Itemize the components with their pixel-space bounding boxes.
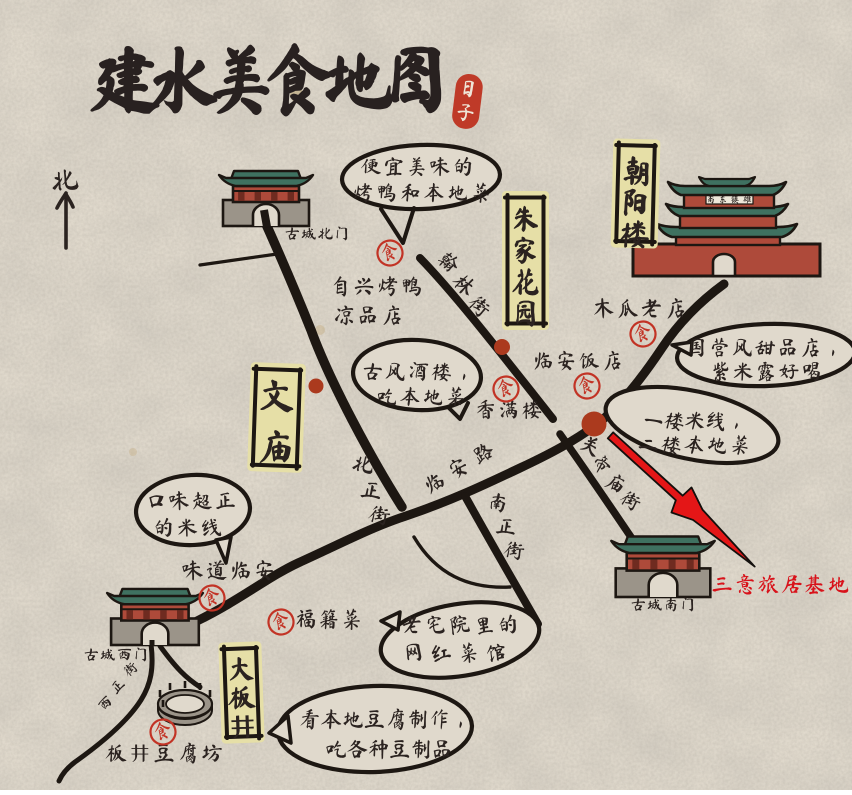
svg-text:红: 红: [429, 641, 453, 665]
svg-text:地: 地: [422, 385, 445, 408]
svg-text:，: ，: [453, 360, 476, 383]
svg-text:店: 店: [800, 337, 821, 358]
svg-text:喝: 喝: [801, 361, 822, 382]
svg-text:本: 本: [423, 182, 444, 203]
svg-text:安: 安: [253, 558, 276, 581]
svg-text:正: 正: [214, 489, 236, 511]
svg-text:食: 食: [494, 377, 517, 400]
svg-text:意: 意: [734, 573, 756, 595]
svg-text:味: 味: [168, 489, 190, 511]
svg-text:家: 家: [511, 236, 540, 265]
svg-text:道: 道: [205, 558, 228, 581]
svg-text:食: 食: [269, 610, 292, 633]
svg-text:菜: 菜: [445, 385, 468, 408]
svg-text:门: 门: [680, 596, 696, 612]
svg-text:楼: 楼: [659, 432, 684, 457]
svg-text:品: 品: [357, 304, 379, 326]
svg-text:古: 古: [83, 646, 99, 662]
svg-text:鸭: 鸭: [401, 275, 423, 297]
svg-text:子: 子: [454, 102, 476, 124]
svg-text:阳: 阳: [619, 186, 651, 218]
svg-text:园: 园: [511, 299, 540, 328]
svg-text:食: 食: [631, 322, 654, 345]
svg-text:二: 二: [636, 432, 661, 457]
svg-text:自: 自: [329, 275, 351, 297]
svg-text:美: 美: [406, 156, 427, 177]
svg-text:地: 地: [447, 182, 468, 203]
svg-text:朱: 朱: [511, 204, 540, 233]
svg-text:庙: 庙: [256, 427, 294, 465]
svg-text:北: 北: [49, 164, 81, 196]
svg-text:居: 居: [781, 573, 803, 595]
svg-text:城: 城: [100, 646, 116, 662]
svg-text:各: 各: [346, 738, 368, 760]
svg-text:超: 超: [191, 489, 213, 511]
svg-text:日: 日: [457, 78, 479, 100]
svg-text:便: 便: [360, 156, 381, 177]
svg-text:和: 和: [400, 182, 421, 203]
svg-text:地: 地: [341, 708, 364, 731]
svg-text:街: 街: [367, 502, 393, 527]
svg-text:安: 安: [555, 349, 577, 371]
svg-text:宜: 宜: [383, 156, 404, 177]
svg-text:坊: 坊: [201, 742, 223, 764]
svg-text:本: 本: [320, 708, 343, 731]
svg-text:味: 味: [181, 558, 204, 581]
svg-text:城: 城: [301, 225, 317, 241]
svg-text:南: 南: [663, 596, 679, 612]
svg-text:腐: 腐: [385, 708, 408, 731]
svg-text:制: 制: [410, 738, 432, 760]
svg-text:古: 古: [361, 360, 384, 383]
svg-text:木: 木: [592, 296, 615, 319]
svg-text:作: 作: [428, 708, 451, 731]
svg-text:老: 老: [640, 296, 663, 319]
svg-text:南: 南: [706, 196, 715, 205]
svg-text:风: 风: [732, 337, 753, 358]
svg-text:兴: 兴: [353, 275, 375, 297]
svg-text:饭: 饭: [578, 350, 600, 372]
svg-text:里: 里: [472, 613, 496, 637]
svg-text:烤: 烤: [377, 275, 399, 297]
svg-text:店: 店: [381, 304, 403, 326]
svg-text:凉: 凉: [333, 304, 355, 326]
svg-text:米: 米: [683, 408, 708, 433]
svg-text:楼: 楼: [430, 360, 453, 383]
svg-text:，: ，: [823, 337, 844, 358]
svg-text:品: 品: [431, 738, 453, 760]
svg-text:的: 的: [496, 613, 520, 637]
svg-text:瓜: 瓜: [616, 296, 639, 319]
svg-text:井: 井: [228, 713, 258, 742]
svg-text:大: 大: [226, 654, 255, 683]
svg-text:酒: 酒: [407, 360, 430, 383]
svg-text:井: 井: [129, 742, 152, 764]
svg-text:食: 食: [378, 241, 401, 264]
svg-text:菜: 菜: [457, 641, 481, 665]
svg-text:腐: 腐: [177, 742, 199, 764]
svg-text:米: 米: [176, 516, 198, 538]
svg-text:福: 福: [294, 608, 317, 631]
svg-text:楼: 楼: [521, 398, 543, 420]
svg-text:基: 基: [804, 573, 826, 595]
svg-text:正: 正: [494, 515, 518, 539]
svg-text:门: 门: [133, 646, 149, 662]
svg-text:店: 店: [664, 296, 687, 319]
svg-text:正: 正: [359, 477, 385, 502]
svg-text:楼: 楼: [662, 408, 687, 433]
svg-text:看: 看: [298, 708, 321, 731]
svg-text:米: 米: [733, 361, 754, 382]
svg-text:旅: 旅: [757, 573, 779, 595]
svg-text:街: 街: [502, 539, 526, 563]
svg-text:网: 网: [402, 641, 426, 665]
svg-text:的: 的: [452, 156, 473, 177]
svg-text:品: 品: [777, 337, 798, 358]
svg-text:口: 口: [145, 489, 167, 511]
svg-text:宅: 宅: [424, 613, 448, 637]
svg-text:临: 临: [532, 350, 554, 372]
svg-text:食: 食: [575, 374, 598, 397]
svg-text:露: 露: [755, 361, 776, 382]
svg-text:国: 国: [686, 337, 707, 358]
svg-text:地: 地: [827, 573, 849, 595]
svg-text:线: 线: [200, 516, 222, 538]
svg-text:紫: 紫: [710, 361, 731, 382]
svg-text:吃: 吃: [325, 738, 347, 760]
svg-text:甜: 甜: [754, 337, 775, 358]
svg-text:北: 北: [317, 225, 333, 241]
svg-text:制: 制: [406, 708, 429, 731]
svg-text:花: 花: [511, 267, 540, 296]
svg-text:种: 种: [367, 738, 389, 760]
svg-text:三: 三: [711, 573, 733, 595]
svg-text:菜: 菜: [340, 608, 363, 631]
svg-text:吃: 吃: [376, 385, 399, 408]
svg-text:豆: 豆: [389, 738, 411, 760]
svg-text:文: 文: [258, 376, 296, 414]
svg-text:地: 地: [705, 432, 730, 457]
svg-text:建水美食地图: 建水美食地图: [88, 41, 450, 116]
svg-text:古: 古: [630, 596, 646, 612]
svg-text:，: ，: [725, 408, 750, 433]
svg-text:馆: 馆: [484, 641, 508, 665]
svg-text:营: 营: [709, 337, 730, 358]
svg-text:菜: 菜: [470, 182, 491, 203]
svg-text:本: 本: [399, 385, 422, 408]
svg-text:门: 门: [334, 225, 350, 241]
svg-text:，: ，: [449, 708, 472, 731]
svg-text:风: 风: [384, 360, 407, 383]
svg-text:香: 香: [475, 398, 497, 420]
svg-text:本: 本: [682, 432, 707, 457]
svg-text:老: 老: [400, 613, 424, 637]
svg-text:籍: 籍: [317, 608, 340, 631]
svg-text:北: 北: [351, 451, 377, 476]
svg-text:临: 临: [229, 558, 252, 581]
svg-text:鸭: 鸭: [376, 182, 397, 203]
svg-text:烤: 烤: [352, 182, 373, 203]
svg-text:板: 板: [105, 742, 127, 764]
svg-text:豆: 豆: [363, 708, 386, 731]
svg-text:一: 一: [641, 408, 666, 433]
svg-text:的: 的: [152, 516, 174, 538]
svg-text:楼: 楼: [619, 218, 651, 250]
svg-text:味: 味: [429, 156, 450, 177]
svg-text:朝: 朝: [620, 155, 652, 187]
svg-text:食: 食: [200, 586, 223, 609]
svg-text:城: 城: [647, 596, 663, 612]
svg-text:好: 好: [778, 361, 799, 382]
svg-text:线: 线: [704, 408, 729, 433]
svg-text:南: 南: [486, 491, 510, 515]
svg-text:古: 古: [284, 225, 300, 241]
svg-text:院: 院: [448, 613, 472, 637]
svg-text:菜: 菜: [728, 432, 753, 457]
svg-text:店: 店: [601, 349, 623, 371]
svg-text:板: 板: [227, 683, 256, 712]
svg-text:食: 食: [151, 720, 174, 743]
